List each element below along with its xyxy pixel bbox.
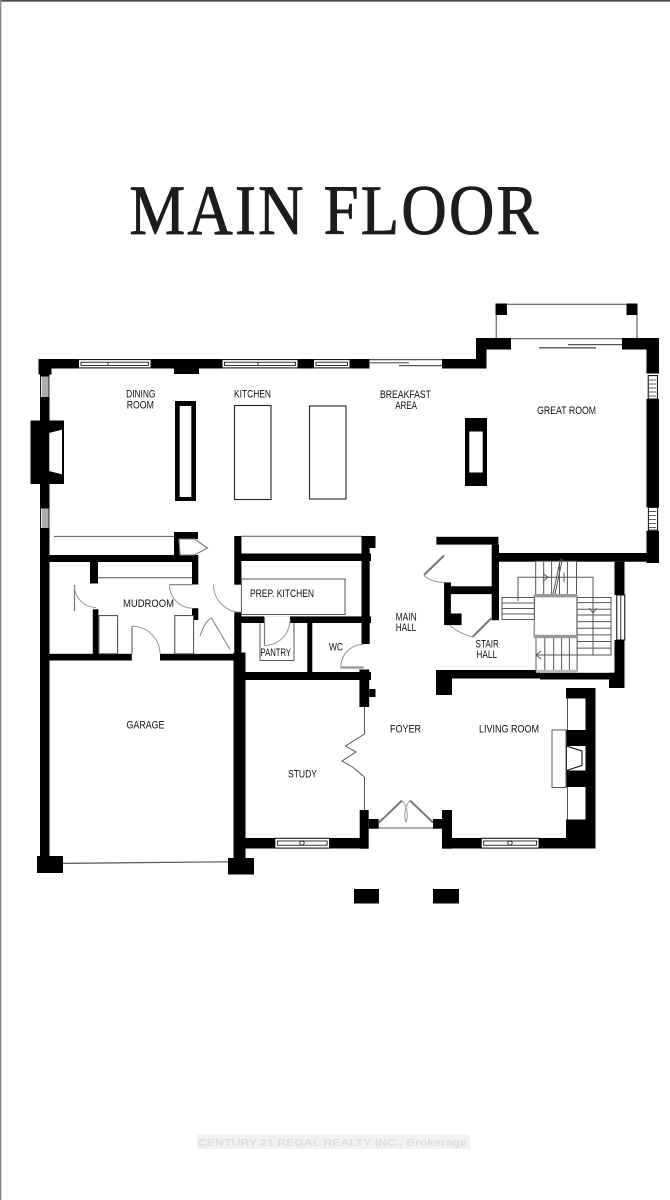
svg-text:FOYER: FOYER xyxy=(390,723,421,735)
svg-text:GREAT ROOM: GREAT ROOM xyxy=(537,405,596,417)
svg-text:MAIN FLOOR: MAIN FLOOR xyxy=(129,170,540,249)
svg-text:GARAGE: GARAGE xyxy=(127,720,165,732)
svg-text:AREA: AREA xyxy=(395,400,417,412)
svg-text:MUDROOM: MUDROOM xyxy=(123,598,174,610)
svg-text:WC: WC xyxy=(329,641,343,653)
svg-text:HALL: HALL xyxy=(396,622,417,634)
svg-text:PANTRY: PANTRY xyxy=(261,647,292,659)
svg-text:LIVING ROOM: LIVING ROOM xyxy=(479,723,539,735)
svg-text:STUDY: STUDY xyxy=(288,768,318,780)
svg-text:KITCHEN: KITCHEN xyxy=(234,389,271,401)
svg-text:ROOM: ROOM xyxy=(127,400,154,412)
svg-text:PREP. KITCHEN: PREP. KITCHEN xyxy=(250,588,314,600)
svg-text:CENTURY 21 REGAL REALTY INC.,: CENTURY 21 REGAL REALTY INC., Brokerage xyxy=(198,1137,467,1149)
svg-text:HALL: HALL xyxy=(476,649,497,661)
